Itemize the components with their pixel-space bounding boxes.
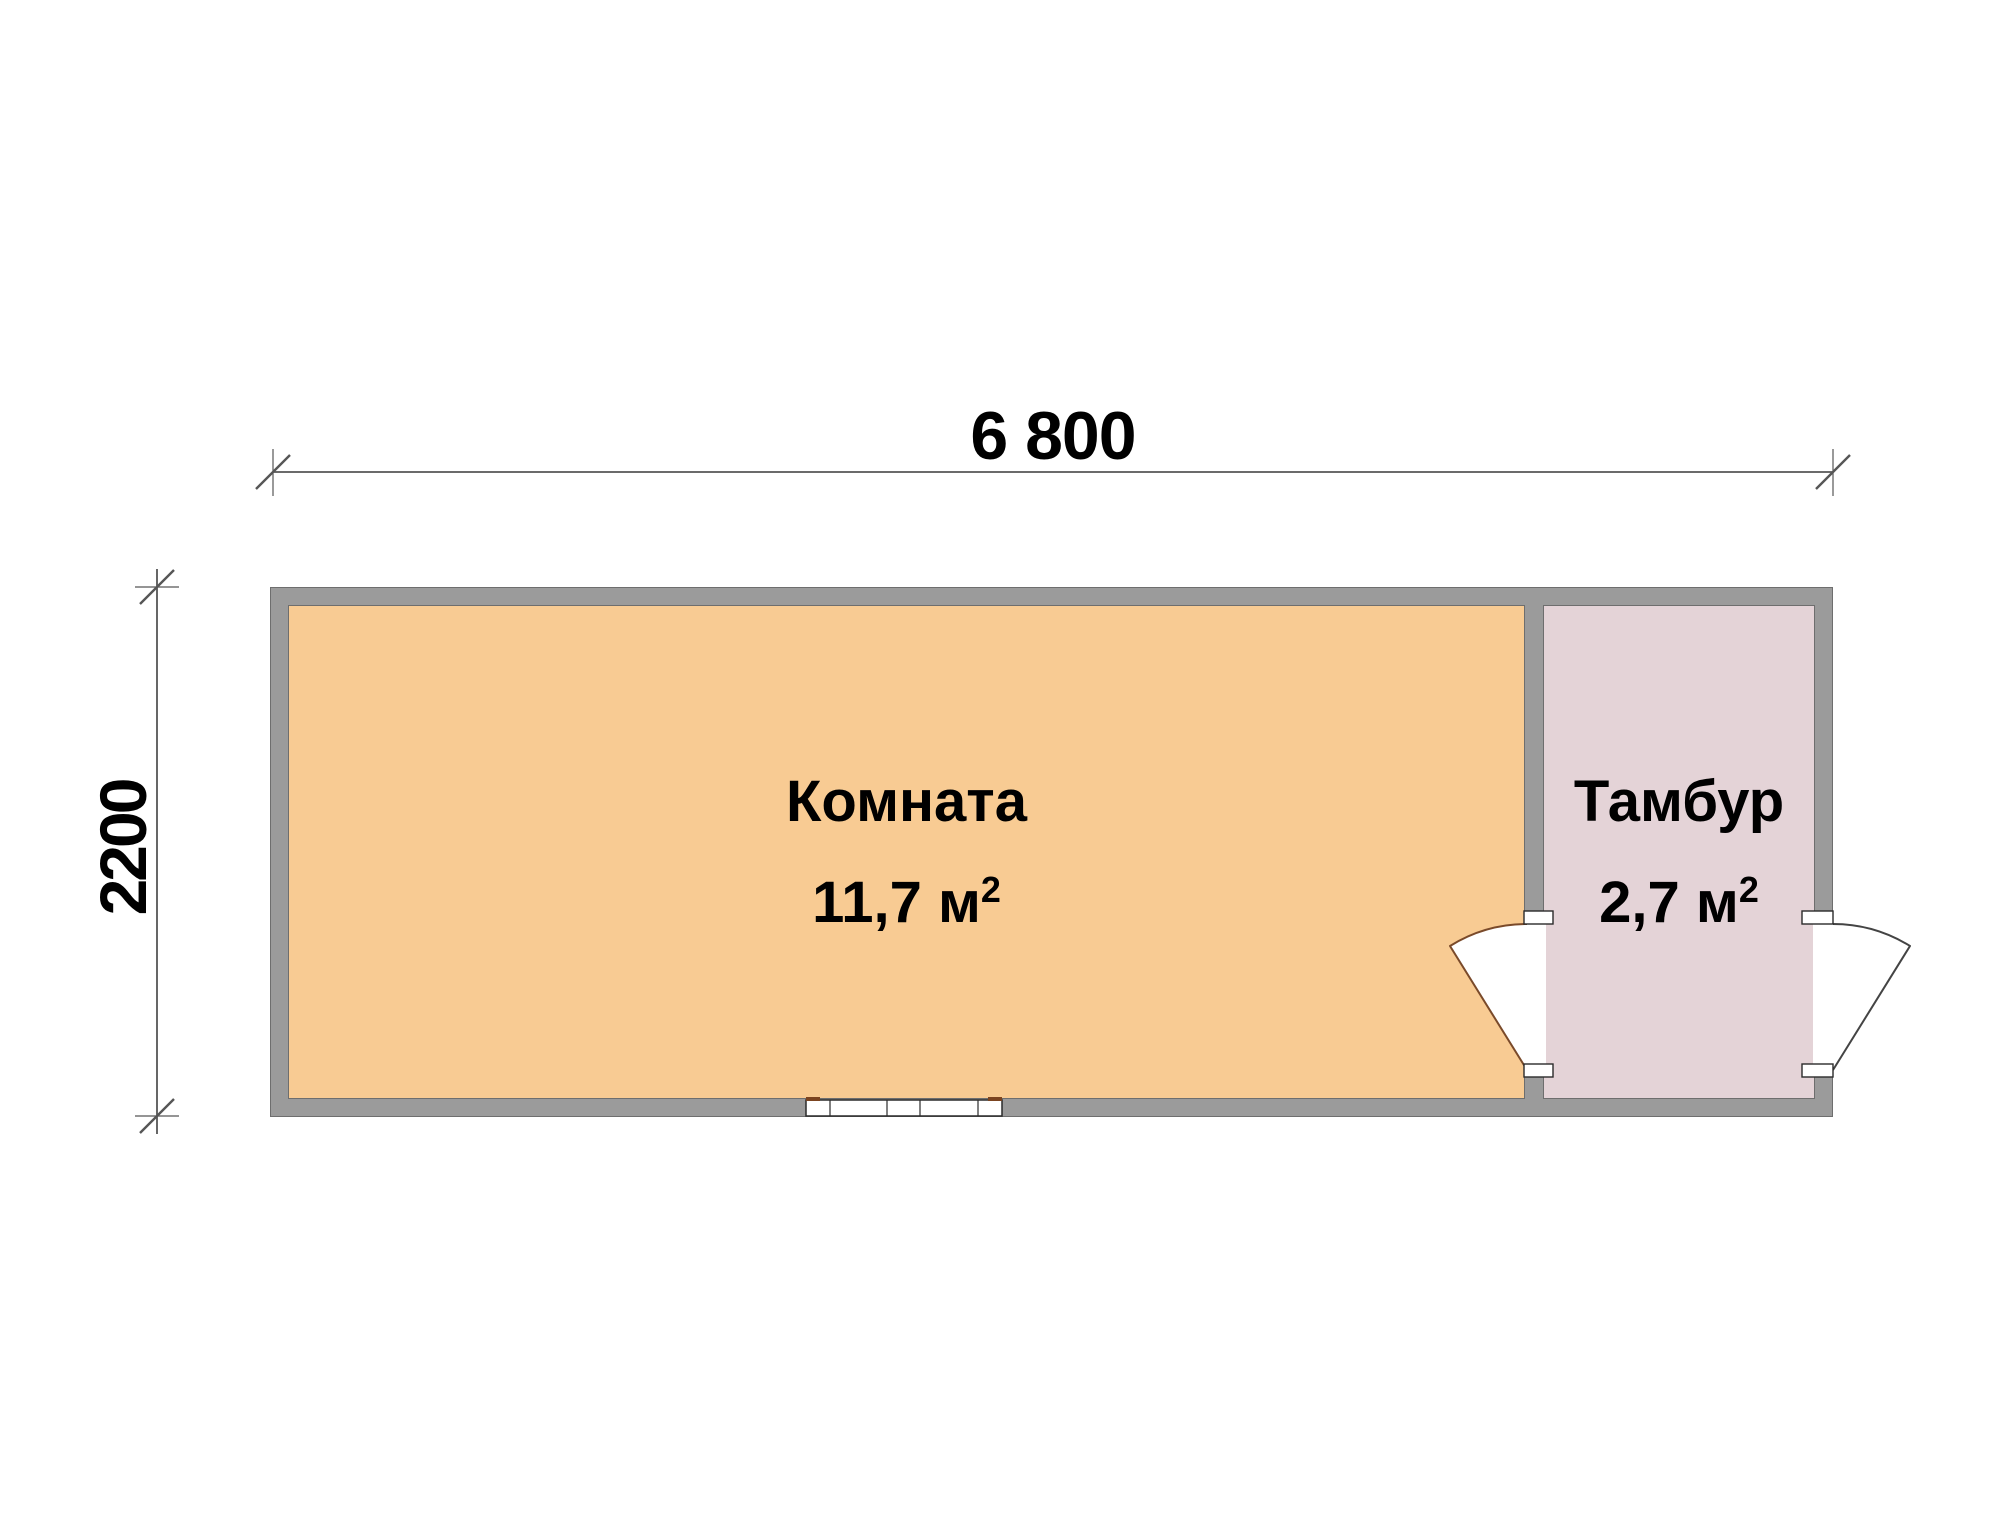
room-komnata-area-value: 11,7 м [812, 870, 981, 935]
room-tambur-area-value: 2,7 м [1599, 870, 1739, 935]
dimension-width-label: 6 800 [853, 404, 1253, 468]
room-tambur [1543, 605, 1815, 1099]
dimension-height-label: 2200 [93, 698, 153, 998]
door-exterior [1833, 924, 1910, 1070]
room-komnata [288, 605, 1525, 1099]
room-tambur-area: 2,7 м2 [1543, 858, 1815, 935]
room-komnata-area-sup: 2 [981, 869, 1001, 910]
room-komnata-area: 11,7 м2 [288, 858, 1525, 935]
room-tambur-area-sup: 2 [1739, 869, 1759, 910]
room-tambur-name: Тамбур [1543, 770, 1815, 834]
floor-plan-canvas: 6 800 2200 Комната 11,7 м2 Тамбур 2,7 м2 [0, 0, 2000, 1539]
room-komnata-name: Комната [288, 770, 1525, 834]
